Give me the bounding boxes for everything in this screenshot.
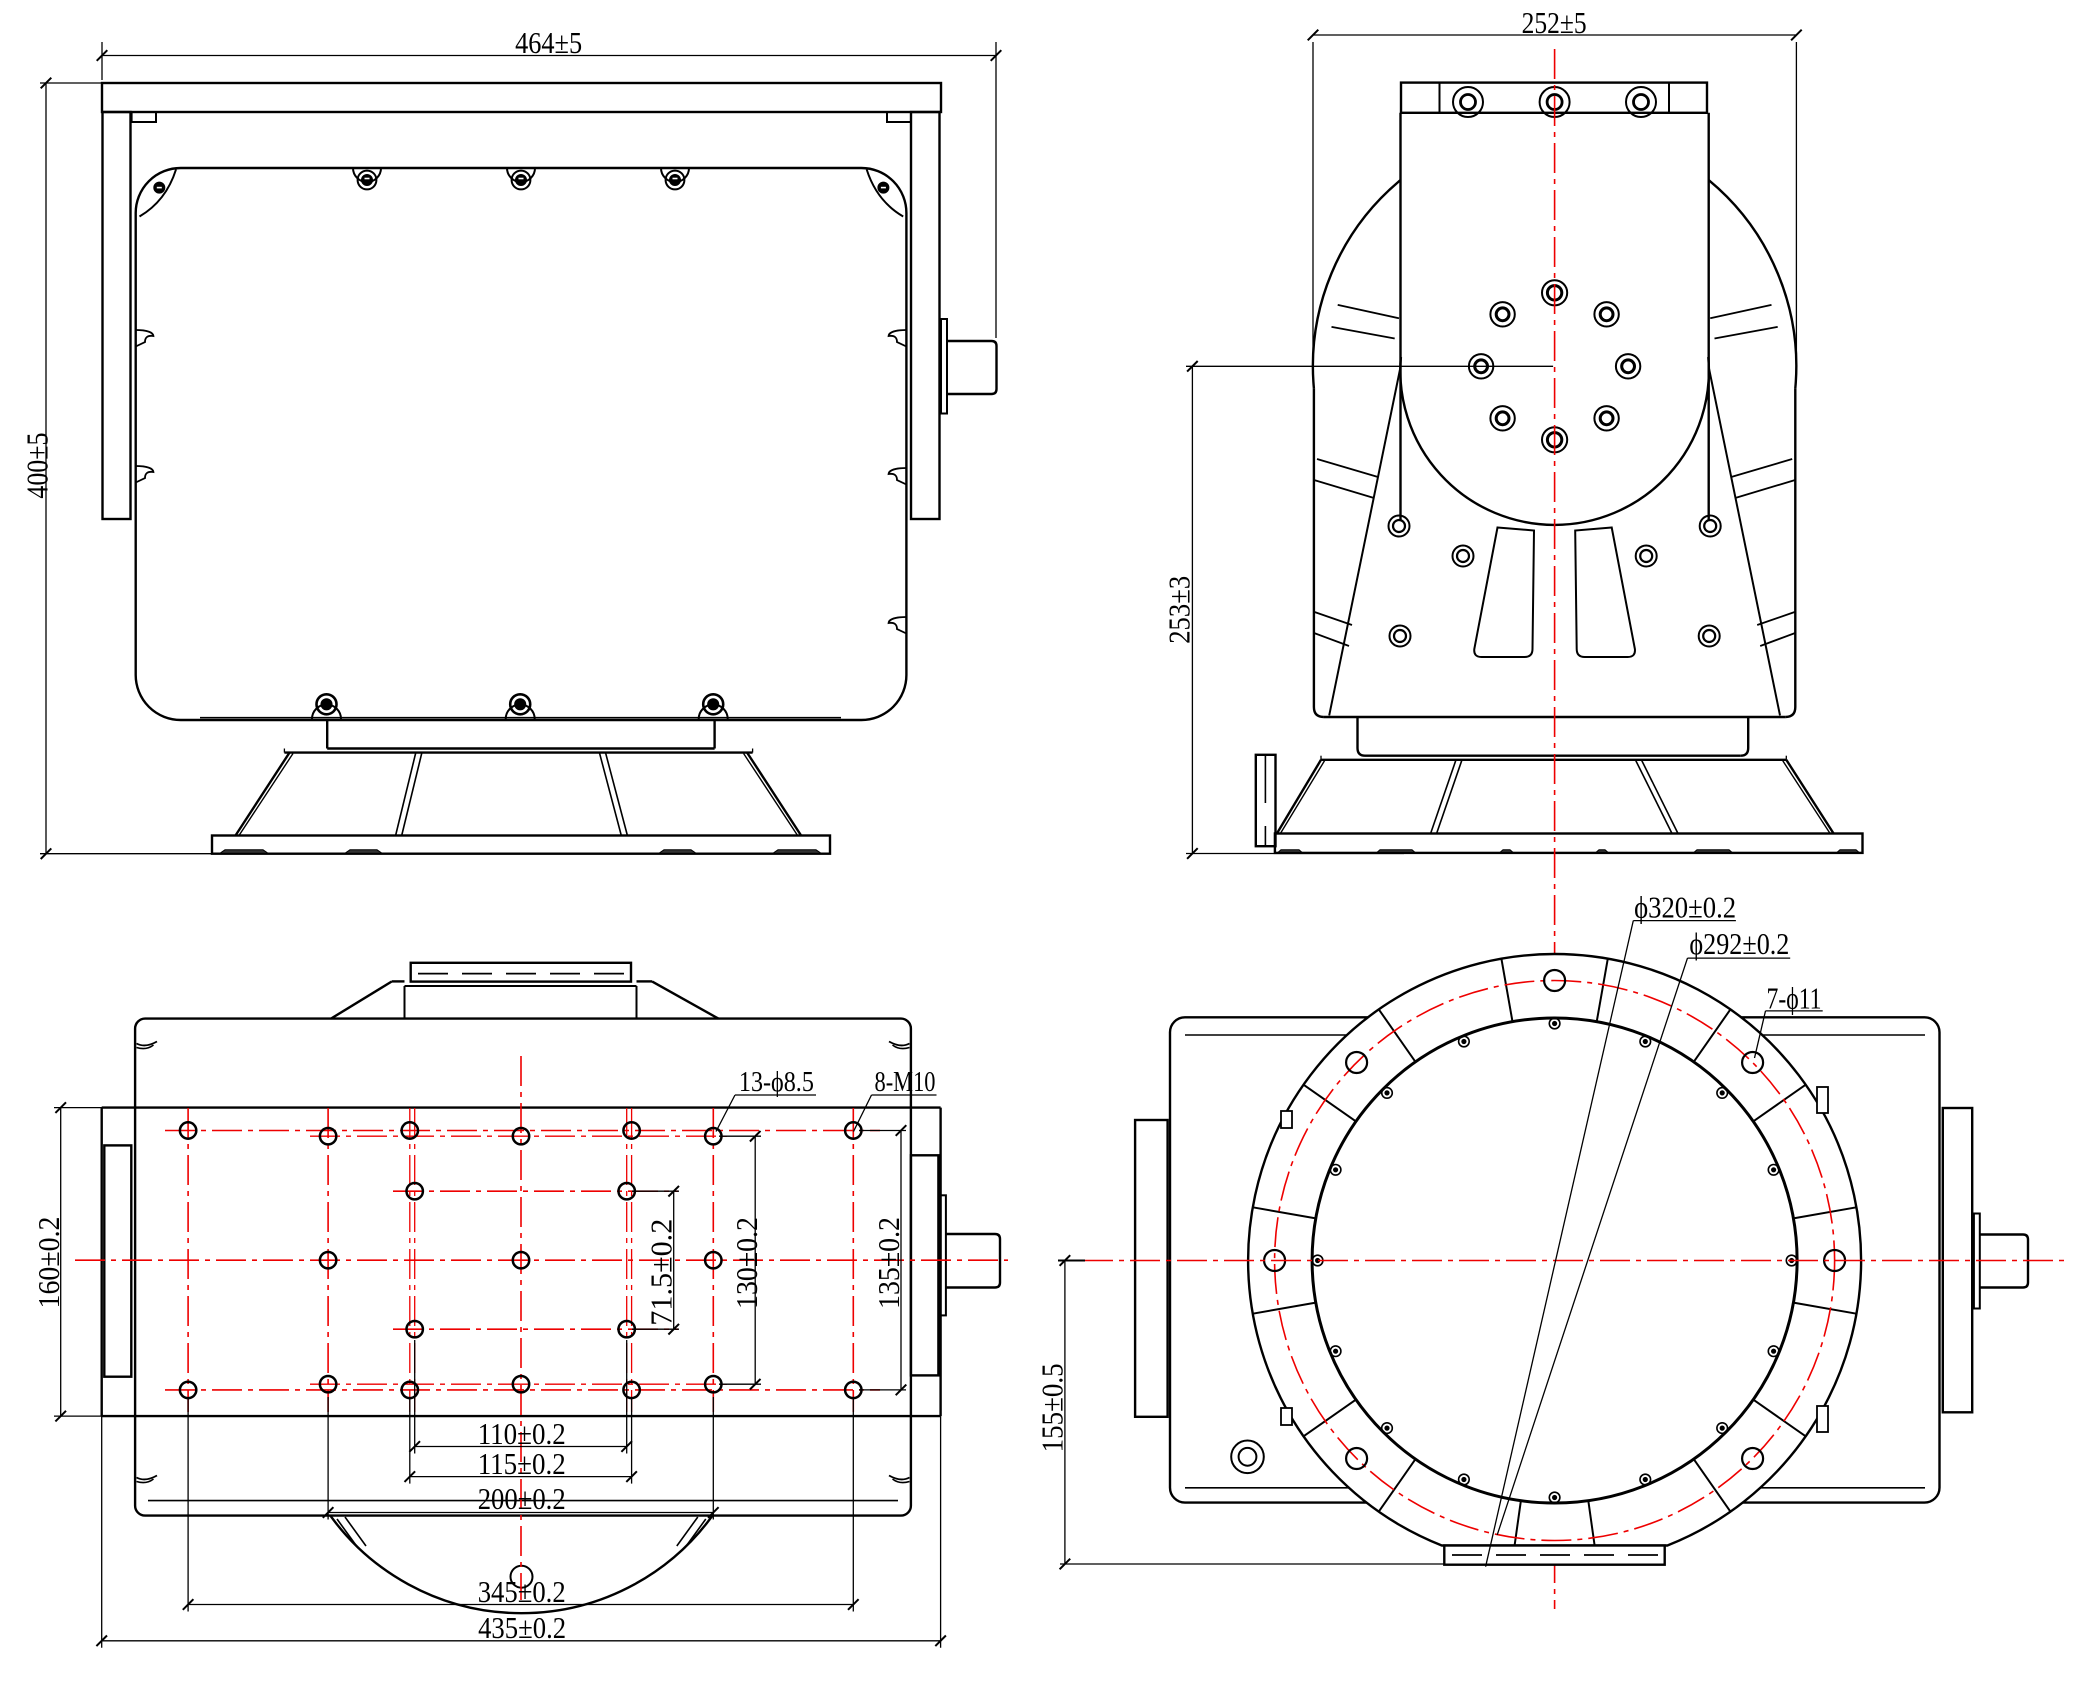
- svg-text:400±5: 400±5: [20, 433, 55, 499]
- svg-text:7-ϕ11: 7-ϕ11: [1767, 981, 1822, 1016]
- svg-text:115±0.2: 115±0.2: [478, 1446, 566, 1481]
- svg-text:ϕ292±0.2: ϕ292±0.2: [1689, 926, 1789, 961]
- svg-text:155±0.5: 155±0.5: [1035, 1363, 1070, 1452]
- svg-text:8-M10: 8-M10: [875, 1066, 936, 1098]
- svg-text:135±0.2: 135±0.2: [871, 1217, 906, 1309]
- svg-text:345±0.2: 345±0.2: [478, 1574, 566, 1609]
- svg-text:200±0.2: 200±0.2: [478, 1481, 566, 1516]
- svg-text:435±0.2: 435±0.2: [478, 1610, 566, 1645]
- svg-text:160±0.2: 160±0.2: [31, 1217, 66, 1309]
- svg-text:464±5: 464±5: [515, 25, 582, 60]
- svg-text:253±3: 253±3: [1162, 576, 1197, 644]
- svg-text:252±5: 252±5: [1522, 5, 1587, 40]
- svg-text:71.5±0.2: 71.5±0.2: [644, 1219, 679, 1326]
- svg-text:13-ϕ8.5: 13-ϕ8.5: [739, 1066, 814, 1098]
- svg-text:130±0.2: 130±0.2: [729, 1217, 764, 1309]
- svg-text:ϕ320±0.2: ϕ320±0.2: [1634, 890, 1736, 925]
